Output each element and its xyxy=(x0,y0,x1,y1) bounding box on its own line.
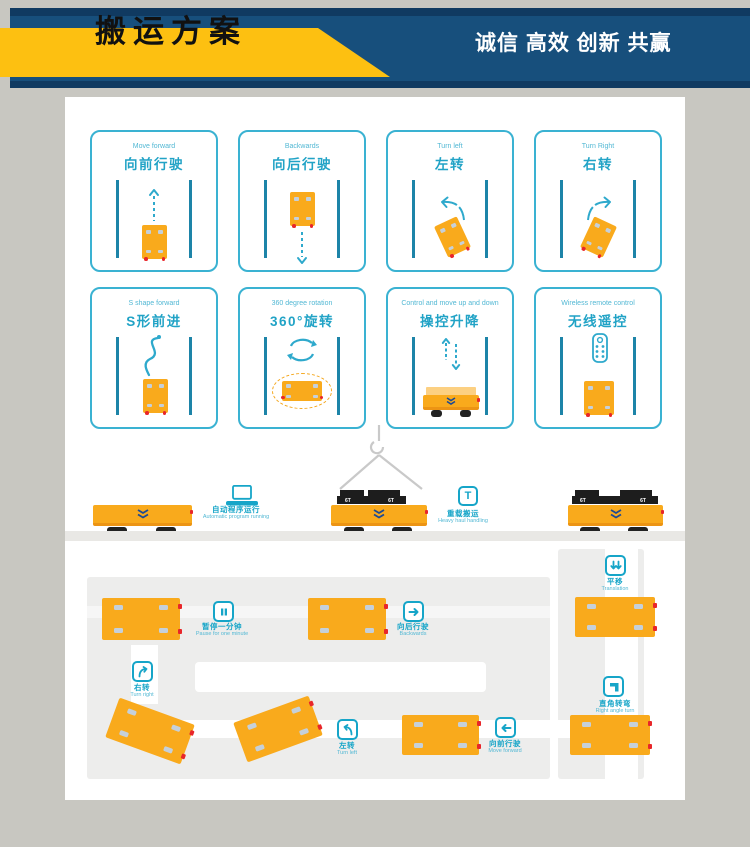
card-move-forward: Move forward 向前行驶 xyxy=(90,130,218,272)
brand-logo xyxy=(446,397,456,406)
card-title: 360°旋转 xyxy=(240,310,364,330)
up-down-arrows-icon xyxy=(440,336,464,372)
arrow-left-icon xyxy=(495,717,516,738)
card-title: S形前进 xyxy=(92,310,216,330)
lane-line xyxy=(633,180,636,258)
card-s-shape: S shape forward S形前进 xyxy=(90,287,218,429)
lane-line xyxy=(633,337,636,415)
card-turn-right: Turn Right 右转 xyxy=(534,130,662,272)
brand-logo xyxy=(610,509,622,519)
agv-top-view xyxy=(142,225,167,259)
up-arrow-icon xyxy=(147,187,161,225)
label-en: Automatic program running xyxy=(181,514,291,521)
label-zh: 左转 xyxy=(292,741,402,750)
card-wireless-remote: Wireless remote control 无线遥控 xyxy=(534,287,662,429)
lane-line xyxy=(116,337,119,415)
agv-top-view xyxy=(143,379,168,413)
header-slogan: 诚信 高效 创新 共赢 xyxy=(475,27,725,57)
brand-logo xyxy=(373,509,385,519)
brand-logo xyxy=(137,509,149,519)
pause-label: 暂停一分钟 Pause for one minute xyxy=(167,622,277,638)
agv-top-view xyxy=(290,192,315,226)
turn-left-label: 左转 Turn left xyxy=(292,741,402,757)
right-angle-turn-label: 直角转弯 Right angle turn xyxy=(560,699,670,715)
lane-line xyxy=(560,337,563,415)
crane-hook-icon xyxy=(335,425,427,493)
card-title: 操控升降 xyxy=(388,310,512,330)
heavy-haul-icon: T xyxy=(458,486,478,506)
card-subtitle: Turn left xyxy=(388,143,512,150)
floor-strip xyxy=(65,531,685,541)
arrow-right-icon xyxy=(403,601,424,622)
card-turn-left: Turn left 左转 xyxy=(386,130,514,272)
card-subtitle: S shape forward xyxy=(92,300,216,307)
load-weight-label: 6T xyxy=(580,498,586,504)
agv-top-view xyxy=(570,715,650,755)
label-en: Right angle turn xyxy=(560,708,670,715)
s-curve-icon xyxy=(138,333,168,379)
translation-label: 平移 Translation xyxy=(560,577,670,593)
card-title: 左转 xyxy=(388,153,512,173)
label-zh: 自动程序运行 xyxy=(181,505,291,514)
load-weight-label: 6T xyxy=(345,498,351,504)
rotation-arrows-icon xyxy=(286,336,318,364)
card-title: 向前行驶 xyxy=(92,153,216,173)
lane-line xyxy=(264,180,267,258)
lane-line xyxy=(412,180,415,258)
lane-line xyxy=(485,180,488,258)
card-subtitle: Wireless remote control xyxy=(536,300,660,307)
content-panel: Move forward 向前行驶 Backwards 向后行驶 xyxy=(65,97,685,800)
page-title: 搬运方案 xyxy=(95,6,247,51)
load-weight-label: 6T xyxy=(388,498,394,504)
card-subtitle: Backwards xyxy=(240,143,364,150)
lane-line xyxy=(264,337,267,415)
lane-line xyxy=(485,337,488,415)
card-rotation: 360 degree rotation 360°旋转 xyxy=(238,287,366,429)
lane-line xyxy=(337,180,340,258)
poster-page: 搬运方案 诚信 高效 创新 共赢 Move forward 向前行驶 Backw… xyxy=(0,0,750,847)
lane-line xyxy=(116,180,119,258)
track-inner-island xyxy=(195,662,486,692)
label-en: Translation xyxy=(560,586,670,593)
label-zh: 暂停一分钟 xyxy=(167,622,277,631)
lane-line xyxy=(189,337,192,415)
turn-left-icon xyxy=(337,719,358,740)
cargo-beams: 6T 6T xyxy=(337,490,406,504)
sensor-dot xyxy=(477,398,480,402)
down-arrow-icon xyxy=(295,230,309,266)
translation-icon xyxy=(605,555,626,576)
label-zh: 向后行驶 xyxy=(358,622,468,631)
agv-side-view-lifted xyxy=(423,387,479,417)
label-en: Backwards xyxy=(358,631,468,638)
heavy-haul-label: 重载搬运 Heavy haul handling xyxy=(408,509,518,525)
move-forward-label: 向前行驶 Move forward xyxy=(450,739,560,755)
wheel xyxy=(431,410,442,417)
card-subtitle: Control and move up and down xyxy=(388,300,512,307)
card-subtitle: Turn Right xyxy=(536,143,660,150)
remote-control-icon xyxy=(591,333,609,363)
label-en: Move forward xyxy=(450,748,560,755)
turn-right-icon xyxy=(132,661,153,682)
label-en: Pause for one minute xyxy=(167,631,277,638)
card-lift-control: Control and move up and down 操控升降 xyxy=(386,287,514,429)
agv-top-view xyxy=(584,381,614,415)
backwards-label: 向后行驶 Backwards xyxy=(358,622,468,638)
card-title: 向后行驶 xyxy=(240,153,364,173)
lane-line xyxy=(337,337,340,415)
label-en: Turn right xyxy=(87,692,197,699)
pause-icon xyxy=(213,601,234,622)
laptop-icon xyxy=(225,485,259,507)
lane-line xyxy=(560,180,563,258)
label-zh: 右转 xyxy=(87,683,197,692)
lane-line xyxy=(189,180,192,258)
card-subtitle: Move forward xyxy=(92,143,216,150)
lane-line xyxy=(412,337,415,415)
label-zh: 平移 xyxy=(560,577,670,586)
agv-top-view xyxy=(575,597,655,637)
card-title: 无线遥控 xyxy=(536,310,660,330)
sensor-dot xyxy=(661,510,664,514)
header-bottom-stripe xyxy=(10,81,750,88)
cargo-beams: 6T 6T xyxy=(572,490,658,504)
card-subtitle: 360 degree rotation xyxy=(240,300,364,307)
load-weight-label: 6T xyxy=(640,498,646,504)
card-backwards: Backwards 向后行驶 xyxy=(238,130,366,272)
track-road-bottom xyxy=(150,720,613,738)
agv-top-view xyxy=(282,381,322,401)
label-en: Turn left xyxy=(292,750,402,757)
icon-letter: T xyxy=(465,490,472,502)
right-angle-turn-icon xyxy=(603,676,624,697)
label-zh: 重载搬运 xyxy=(408,509,518,518)
label-zh: 直角转弯 xyxy=(560,699,670,708)
wheel xyxy=(460,410,471,417)
auto-program-label: 自动程序运行 Automatic program running xyxy=(181,505,291,521)
card-title: 右转 xyxy=(536,153,660,173)
turn-right-label: 右转 Turn right xyxy=(87,683,197,699)
label-zh: 向前行驶 xyxy=(450,739,560,748)
label-en: Heavy haul handling xyxy=(408,518,518,525)
